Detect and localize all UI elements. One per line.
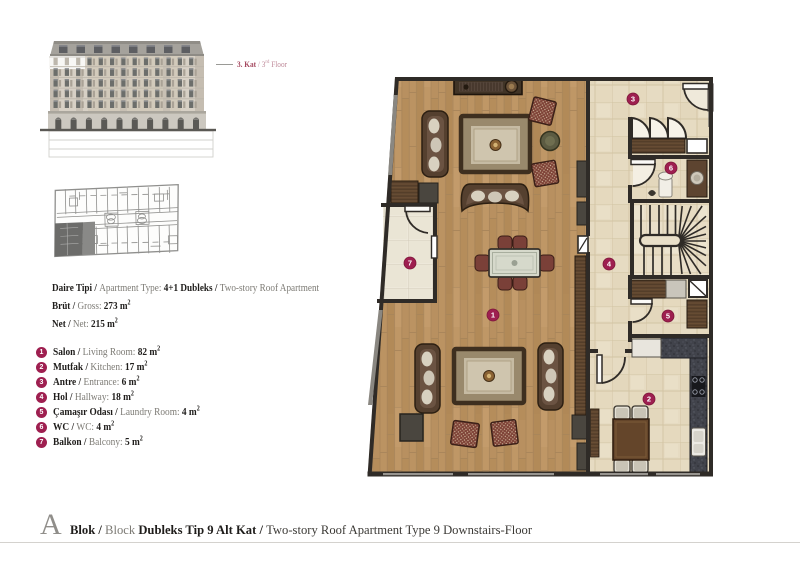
svg-text:3: 3 [631,95,635,104]
svg-text:5: 5 [666,312,670,321]
svg-text:2: 2 [647,395,651,404]
svg-text:6: 6 [669,164,673,173]
svg-text:1: 1 [491,311,495,320]
svg-text:7: 7 [408,259,412,268]
